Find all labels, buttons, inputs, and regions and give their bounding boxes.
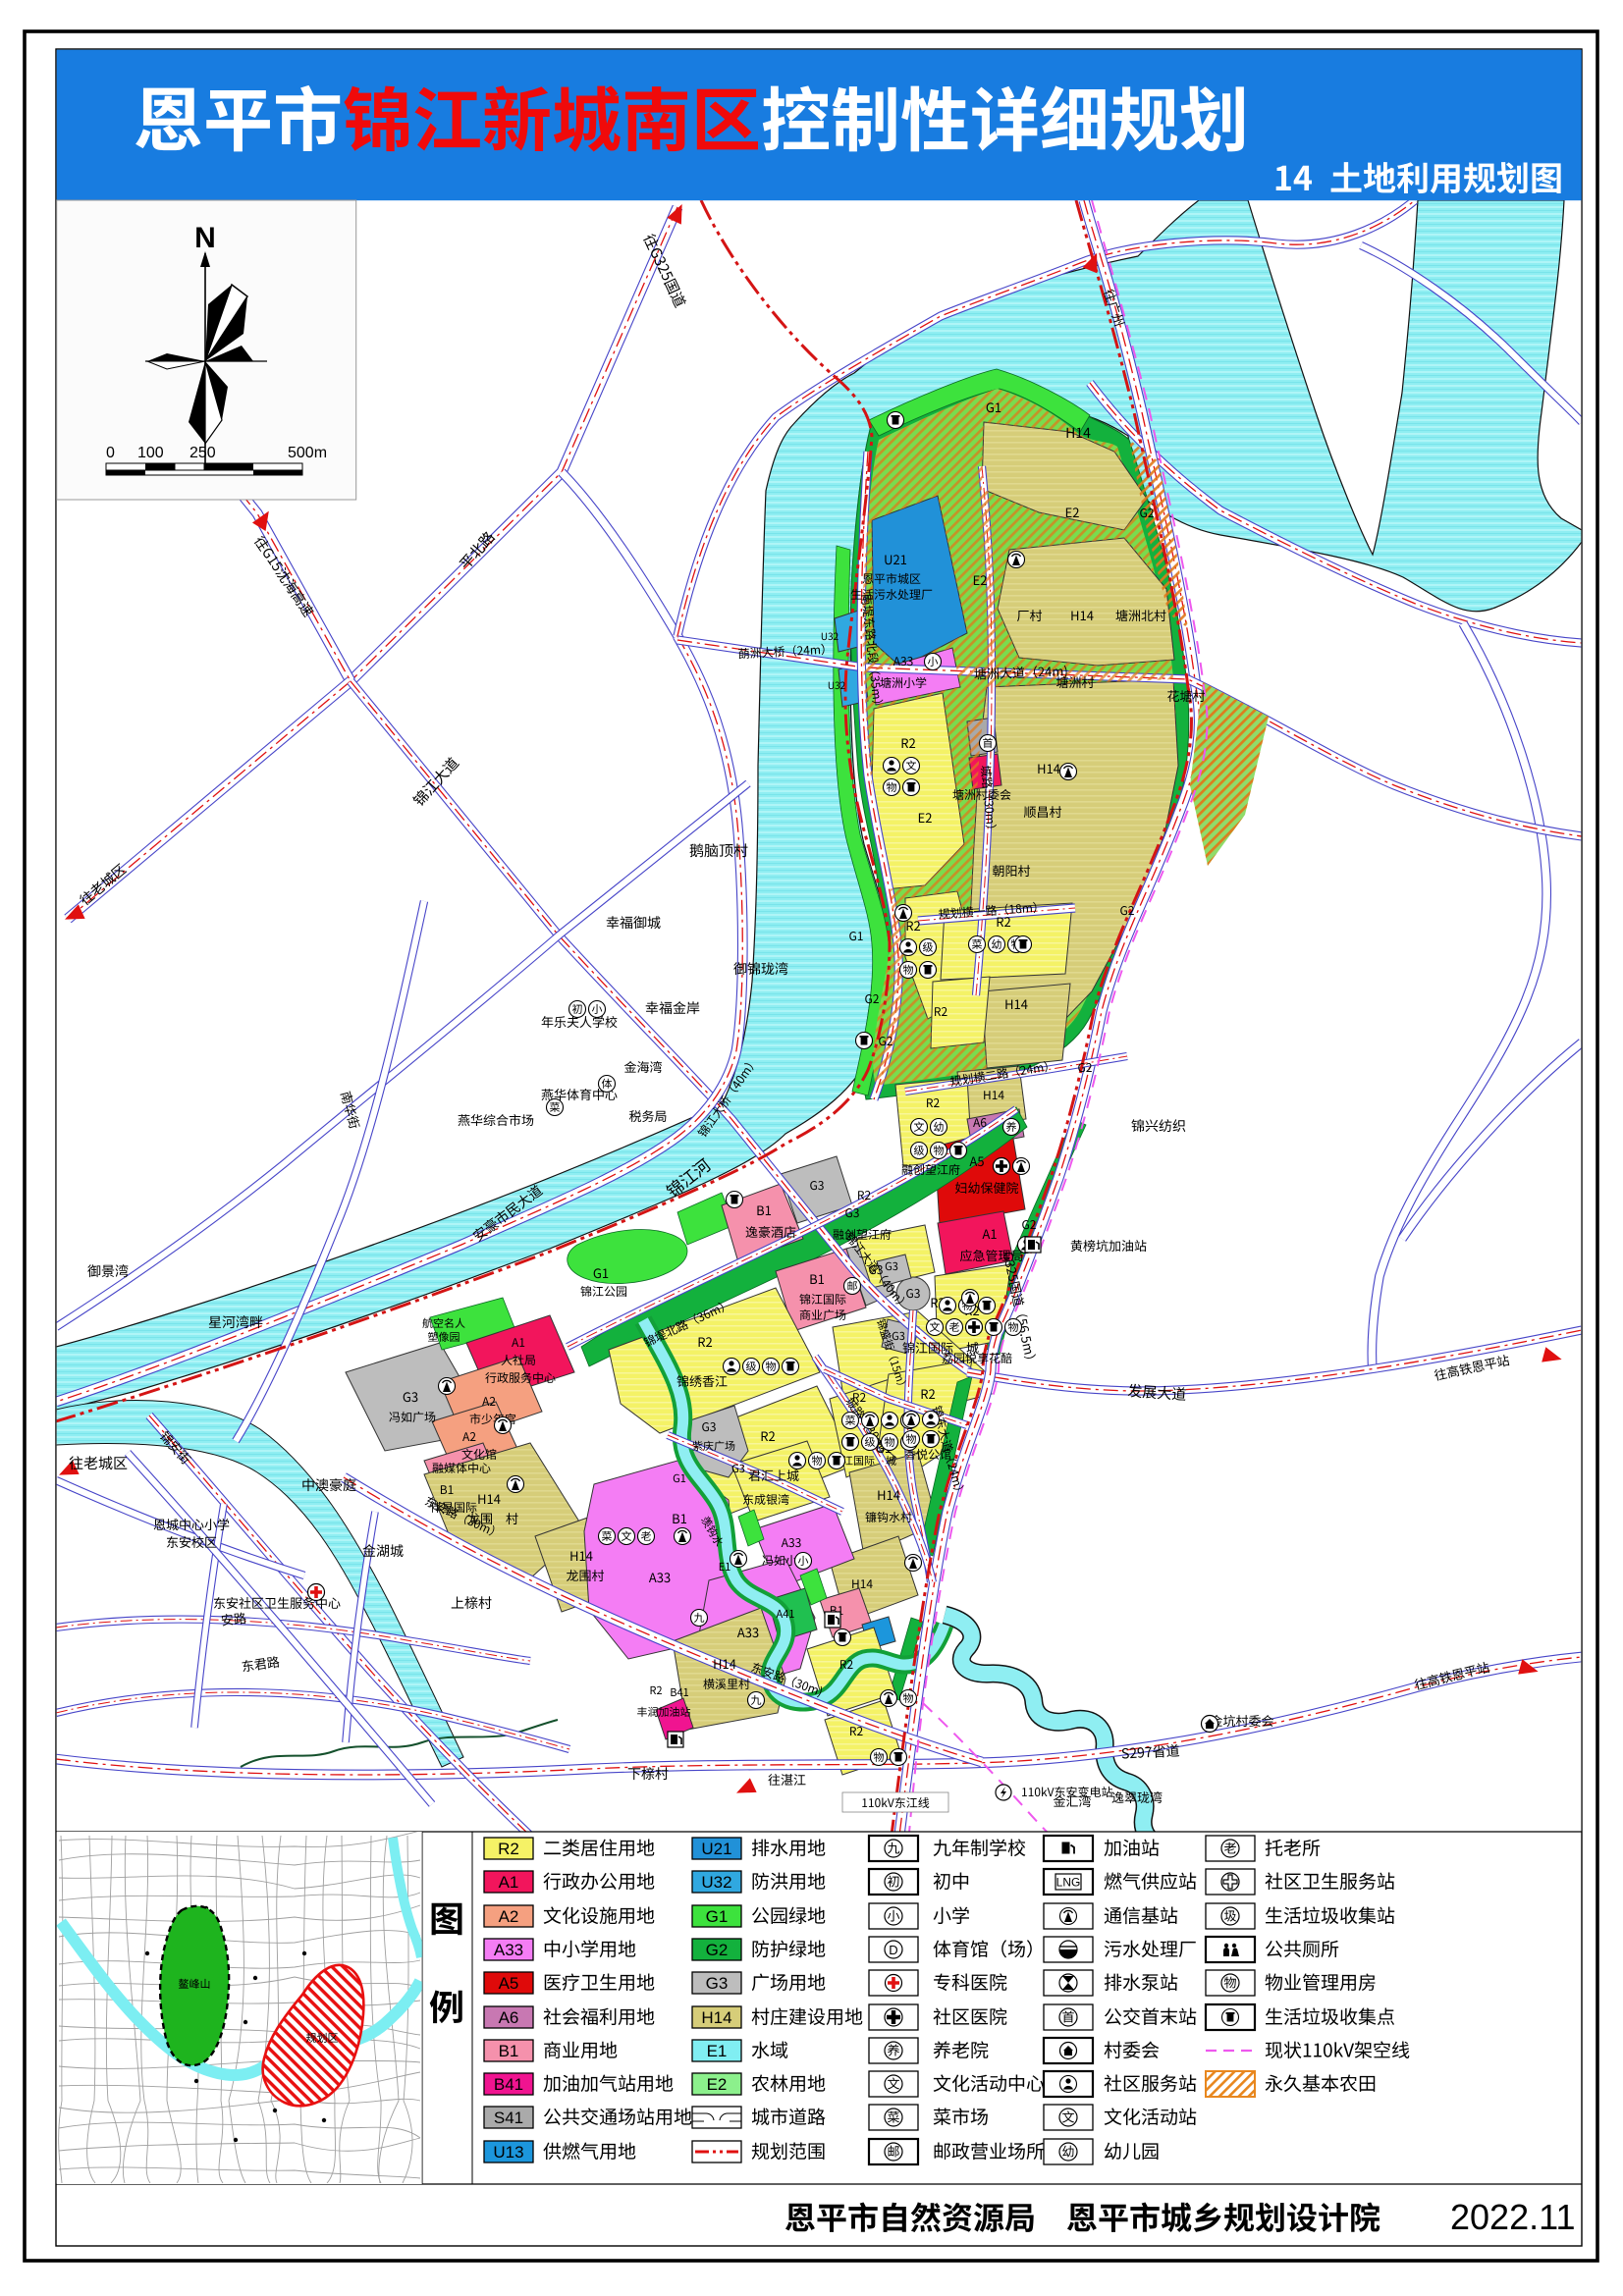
svg-text:U21: U21 — [701, 1840, 731, 1858]
svg-text:LNG: LNG — [1056, 1876, 1081, 1890]
svg-text:500m: 500m — [288, 445, 327, 461]
svg-text:G2: G2 — [706, 1941, 729, 1959]
svg-text:100: 100 — [137, 445, 164, 461]
svg-text:N: N — [194, 222, 216, 254]
svg-text:G3: G3 — [706, 1974, 729, 1993]
svg-text:U32: U32 — [701, 1873, 731, 1892]
svg-text:B1: B1 — [499, 2042, 519, 2060]
svg-text:A1: A1 — [499, 1873, 519, 1892]
svg-text:U13: U13 — [493, 2143, 523, 2162]
svg-text:G1: G1 — [706, 1907, 729, 1926]
svg-text:D: D — [889, 1943, 897, 1957]
svg-text:0: 0 — [106, 445, 115, 461]
svg-text:A6: A6 — [499, 2008, 519, 2027]
svg-text:250: 250 — [189, 445, 216, 461]
svg-text:H14: H14 — [701, 2008, 731, 2027]
svg-text:E2: E2 — [707, 2075, 728, 2094]
svg-text:B41: B41 — [494, 2075, 523, 2094]
svg-text:E1: E1 — [707, 2042, 728, 2060]
svg-text:A33: A33 — [494, 1941, 523, 1959]
svg-text:R2: R2 — [498, 1840, 519, 1858]
svg-text:A5: A5 — [499, 1974, 519, 1993]
svg-text:2022.11: 2022.11 — [1450, 2197, 1575, 2237]
svg-text:A2: A2 — [499, 1907, 519, 1926]
svg-text:S41: S41 — [494, 2109, 523, 2127]
